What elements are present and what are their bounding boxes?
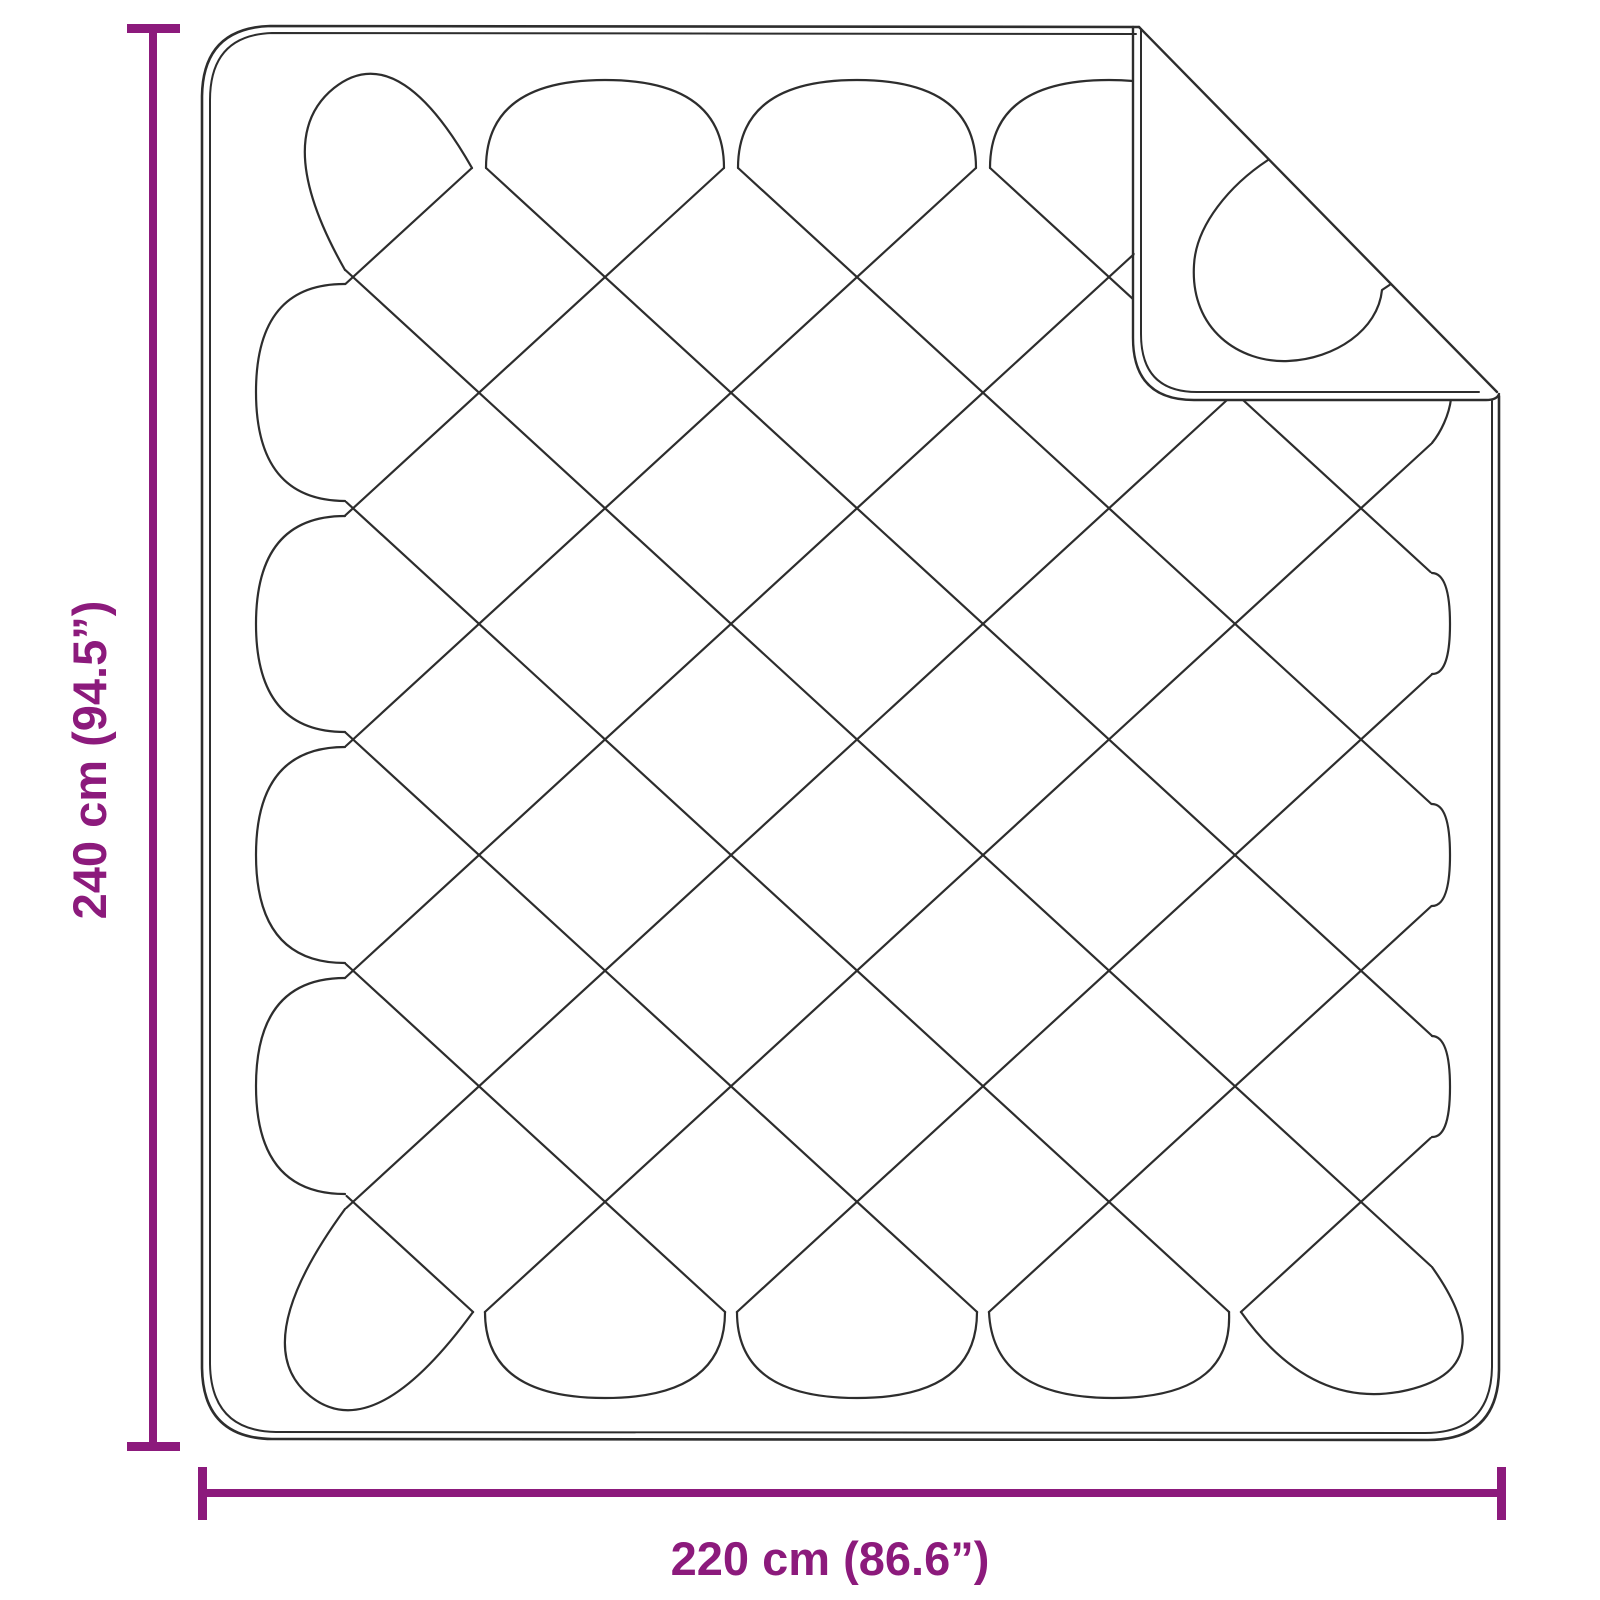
height-dimension-cap-bottom [127, 1442, 180, 1451]
quilt-line [256, 516, 345, 732]
height-dimension-cap-top [127, 24, 180, 33]
width-dimension-cap-left [198, 1467, 207, 1520]
quilt-line [256, 284, 345, 501]
folded-corner-flap [1133, 27, 1499, 400]
quilt-line [989, 906, 1432, 1312]
quilt-line [1432, 1036, 1450, 1137]
quilt-line [738, 80, 976, 168]
width-dimension-cap-right [1497, 1467, 1506, 1520]
quilt-line [285, 1209, 473, 1410]
quilt-line [486, 80, 724, 168]
width-dimension: 220 cm (86.6”) [198, 1467, 1506, 1585]
quilt-line [305, 74, 472, 270]
flap-fill [1133, 27, 1497, 400]
quilt-line [989, 1312, 1229, 1398]
quilt-line [347, 1196, 474, 1312]
quilt-line [346, 964, 725, 1312]
quilt-line [345, 254, 1134, 978]
quilt-line [1241, 1138, 1431, 1312]
quilt-line [346, 502, 1229, 1312]
width-dimension-label: 220 cm (86.6”) [671, 1532, 990, 1585]
height-dimension: 240 cm (94.5”) [63, 24, 180, 1451]
height-dimension-label: 240 cm (94.5”) [63, 601, 116, 920]
quilt-line [1241, 1267, 1463, 1394]
quilt-line [737, 1312, 977, 1398]
quilt-line [1432, 573, 1450, 674]
quilt-line [737, 674, 1432, 1312]
blanket-diagram-canvas: 240 cm (94.5”) 220 cm (86.6”) [0, 0, 1600, 1600]
quilt-line [345, 270, 1431, 1266]
quilt-line [485, 444, 1431, 1312]
quilt-line [346, 168, 976, 746]
height-dimension-line [149, 28, 157, 1447]
quilt-line [1432, 399, 1451, 443]
quilt-line [345, 168, 724, 516]
quilt-line [345, 168, 472, 284]
quilt-line [485, 1312, 725, 1398]
quilt-line [256, 747, 345, 963]
width-dimension-line [202, 1489, 1502, 1497]
dimension-diagram: 240 cm (94.5”) 220 cm (86.6”) [0, 0, 1600, 1600]
quilt-line [345, 732, 977, 1312]
quilt-line [256, 978, 345, 1194]
quilt-line [1432, 804, 1450, 906]
